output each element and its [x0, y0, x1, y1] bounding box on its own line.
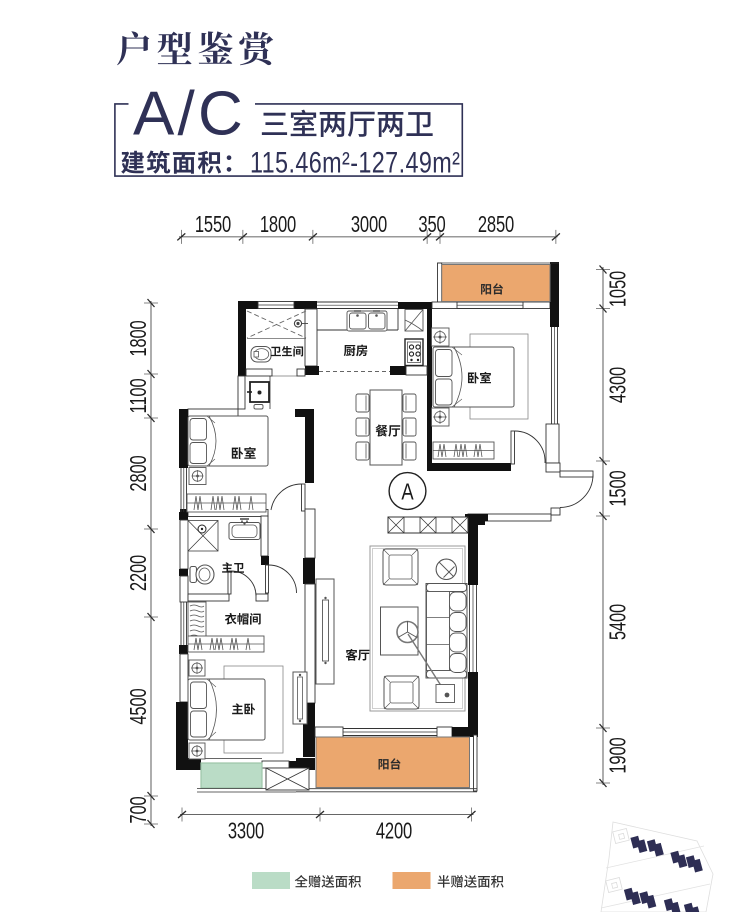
svg-text:1550: 1550 — [195, 212, 231, 237]
svg-text:1100: 1100 — [126, 378, 151, 413]
svg-text:4300: 4300 — [606, 367, 631, 403]
svg-text:5400: 5400 — [606, 604, 631, 640]
svg-text:4500: 4500 — [126, 688, 151, 724]
svg-text:2800: 2800 — [126, 455, 151, 491]
svg-text:A: A — [401, 480, 413, 505]
svg-text:1800: 1800 — [126, 320, 151, 356]
svg-text:1800: 1800 — [260, 212, 296, 237]
svg-text:3300: 3300 — [228, 819, 264, 844]
svg-text:1050: 1050 — [606, 271, 631, 307]
svg-text:1900: 1900 — [606, 737, 631, 773]
svg-text:2850: 2850 — [478, 212, 514, 237]
svg-text:115.46m²-127.49m²: 115.46m²-127.49m² — [250, 146, 460, 179]
svg-text:350: 350 — [418, 212, 445, 237]
svg-text:1500: 1500 — [606, 470, 631, 506]
svg-text:700: 700 — [126, 796, 151, 823]
svg-text:2200: 2200 — [126, 555, 151, 591]
svg-text:A/C: A/C — [133, 80, 246, 149]
svg-text:3000: 3000 — [351, 212, 387, 237]
svg-text:4200: 4200 — [376, 819, 412, 844]
